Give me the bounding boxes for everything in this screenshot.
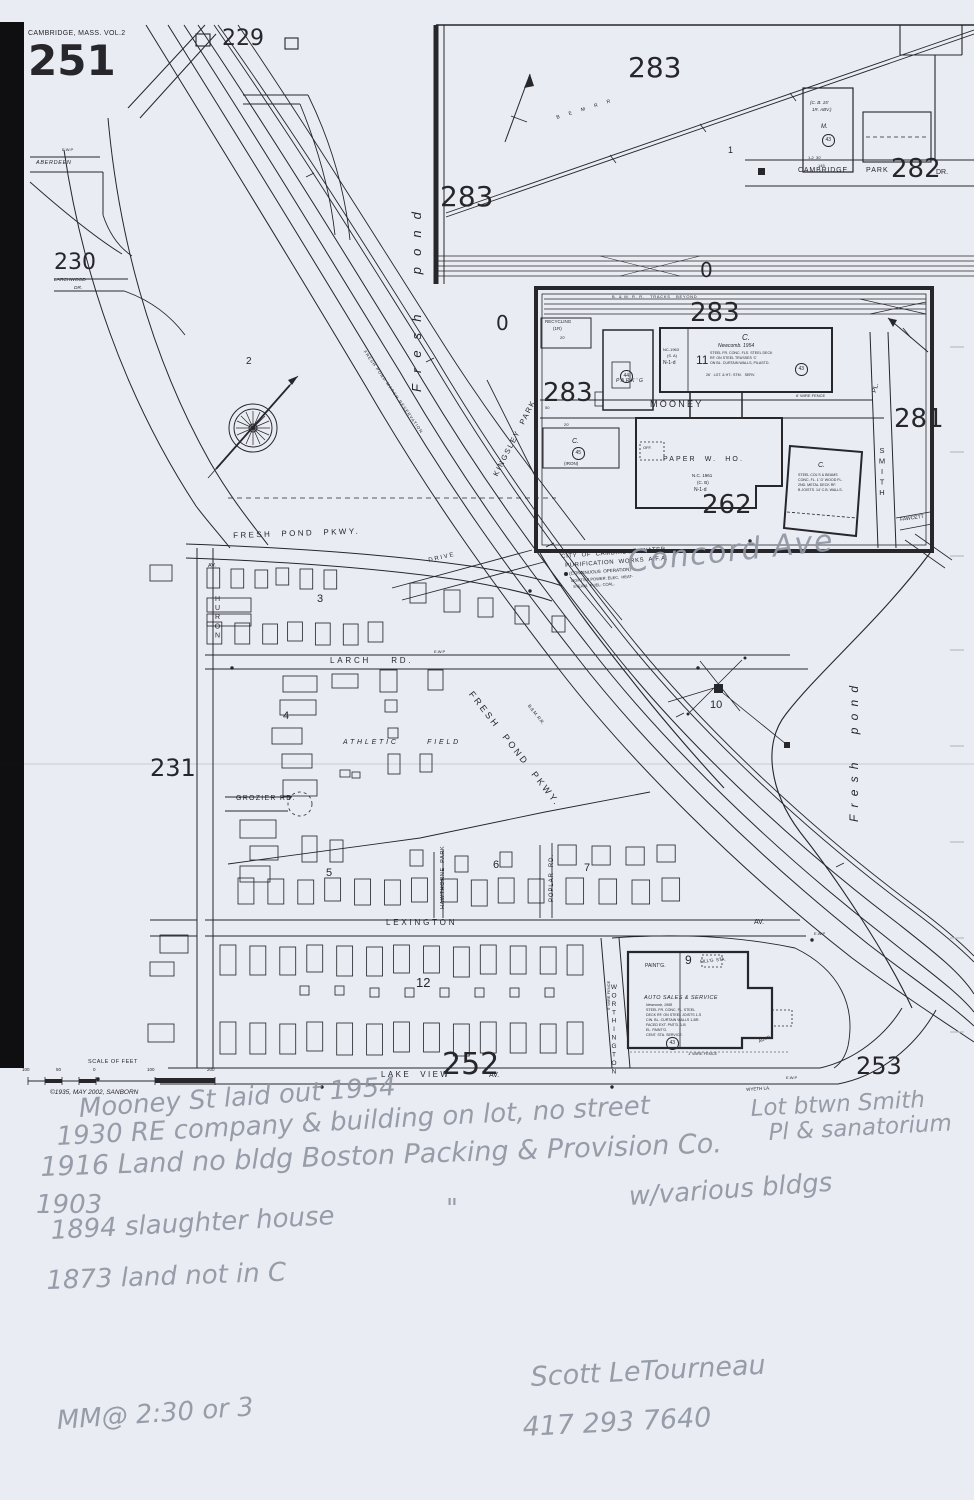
fence-1ft: 1' WIRE FENCE (688, 1052, 717, 1056)
street-fresh-pond-pkwy: FRESH POND PKWY. (233, 528, 360, 540)
plate-283-left: 283 (440, 183, 493, 211)
iron-bldg-note: (IRON) (564, 462, 578, 467)
ewp-label-4: E.W.P (786, 1076, 797, 1080)
recycling-line2: (1R) (553, 327, 562, 332)
newcomb-annex1: NC-1963 (663, 348, 679, 352)
auto-sales-title: AUTO SALES & SERVICE (644, 996, 718, 1002)
newcomb-class: C. (742, 334, 750, 342)
paper-warehouse-const: (C. B) (697, 481, 709, 486)
street-drive: DRIVE (428, 552, 456, 564)
steel-bldg-spec4: B JOISTS. 14' C.B. WALLS. (798, 489, 843, 493)
block-7: 7 (584, 863, 590, 874)
circled-number-43-cambridge-park: 43 (822, 134, 835, 147)
paper-warehouse-office: OFF. (643, 446, 652, 450)
plate-229: 229 (222, 28, 264, 50)
circled-number-43-newcomb: 43 (795, 363, 808, 376)
zero-mark-b: 0 (700, 260, 713, 280)
pencil-note-1873: 1873 land not in C (46, 1260, 287, 1294)
block-4: 4 (283, 711, 289, 722)
street-cambridge: CAMBRIDGE (798, 167, 848, 174)
railroad-tracks-beyond: B. & M. R. R. TRACKS BEYOND (612, 295, 697, 299)
plate-283-top: 283 (628, 54, 681, 82)
pencil-signature: Scott LeTourneau (530, 1352, 766, 1391)
cb-bldg-m: M. (821, 124, 828, 130)
cb-bldg-dim2: 145 (818, 164, 825, 168)
scale-100-right: 100 (147, 1068, 155, 1073)
block-2: 2 (246, 357, 252, 367)
street-mooney: MOONEY (650, 400, 704, 409)
paper-warehouse: PAPER W. HO. (663, 456, 744, 463)
circled-number-43-auto: 43 (666, 1037, 679, 1050)
newcomb-spec3: ON BL. CURTAIN WALLS, PILASTD. (710, 362, 769, 366)
street-fawcett: FAWCETT (900, 515, 924, 523)
waterworks-line5: STEAM, FUEL: COAL. (573, 582, 615, 589)
scale-200: 200 (207, 1068, 215, 1073)
sheet-number: 251 (28, 40, 116, 82)
newcomb-annex3: N-1-d (663, 361, 676, 366)
ewp-label-2: E.W.P (434, 650, 445, 654)
painting-note: PAINT'G. (645, 964, 666, 969)
plate-253: 253 (856, 1054, 902, 1078)
street-grozier-rd: GROZIER RD. (236, 795, 296, 802)
street-lake-view-av-suffix: AV. (489, 1072, 499, 1079)
pencil-concord-ave: Concord Ave (626, 526, 835, 578)
scale-100-left: 100 (22, 1068, 30, 1073)
plate-230: 230 (54, 252, 96, 274)
street-larchwood: LARCHWOOD (54, 279, 86, 284)
iron-bldg-class: C. (572, 438, 579, 445)
railroad-bm-inset: B E M R R (556, 99, 613, 121)
lot-number-1: 1 (728, 146, 733, 155)
mooney-width: 50 (545, 406, 549, 410)
street-wyeth-la: WYETH LA. (746, 1086, 771, 1092)
street-huron-av-suffix: AV. (208, 564, 216, 570)
pencil-meeting-note: MM@ 2:30 or 3 (56, 1394, 255, 1434)
recycling-line1: RECYCLING (545, 320, 571, 325)
recycling-line3: 20' (560, 336, 565, 340)
ewp-label-1: E.W.P (62, 148, 73, 152)
circled-number-45: 45 (572, 447, 585, 460)
pencil-ditto-mark: " (446, 1196, 458, 1222)
street-larchwood-dr: DR. (74, 287, 82, 292)
steel-bldg-class: C. (818, 462, 825, 469)
street-kingsley-park: KINGSLEY PARK (492, 399, 537, 478)
circled-number-44: 44 (620, 370, 633, 383)
street-poplar-rd: POPLAR RD. (549, 854, 555, 902)
street-lexington: LEXINGTON (386, 919, 457, 927)
paper-warehouse-code: N-1-d (694, 488, 707, 493)
block-3: 3 (317, 594, 323, 605)
street-cambridge-dr-suffix: DR. (936, 169, 948, 176)
scale-0: 0 (93, 1068, 96, 1073)
auto-road-note: AUTO (758, 1035, 771, 1044)
fence-5ft: 5' WIRE FENCE (607, 981, 611, 1010)
block-5: 5 (326, 868, 332, 879)
street-huron: HURON (214, 596, 221, 642)
newcomb-annex2: (S. A) (667, 354, 677, 358)
street-fresh-pond-pkwy-diagonal: FRESH POND PKWY. (467, 690, 562, 808)
ewp-label-3: E.W.P (814, 932, 825, 936)
block-10: 10 (710, 700, 722, 711)
scanned-map-sheet: CAMBRIDGE, MASS. VOL.2251229230231252253… (0, 0, 974, 1500)
newcomb-name: Newcomb. 1954 (718, 344, 754, 349)
iron-bldg-dim: 20' (564, 423, 569, 427)
zero-mark-a: 0 (496, 313, 509, 333)
plate-282: 282 (891, 156, 941, 182)
block-9: 9 (685, 954, 692, 966)
block-12: 12 (416, 976, 430, 989)
cb-bldg-line1: (C. B. 15' (810, 101, 829, 106)
fence-6ft: 6' WIRE FENCE (796, 394, 825, 398)
street-lexington-av-suffix: AV. (754, 919, 764, 926)
filling-station-note: FILL'G STA. (700, 957, 726, 964)
street-smith: SMITH (878, 446, 886, 499)
street-larch-rd: LARCH RD. (330, 657, 413, 665)
plate-283-inset-left: 283 (543, 380, 593, 406)
newcomb-spec4: 26' LGT. & HT.: STM. SERV. (706, 374, 755, 378)
plate-283-inset-top: 283 (690, 300, 740, 326)
street-park: PARK (866, 167, 889, 174)
pencil-phone: 417 293 7640 (522, 1404, 712, 1441)
street-hawthorne-park: HAWTHORNE PARK (441, 846, 447, 909)
auto-sales-spec6: CENT. STA. SERVICE. (646, 1034, 683, 1038)
railroad-bm-main: B.& M. R.R. (526, 704, 544, 725)
street-aberdeen: ABERDEEN (36, 161, 72, 167)
pencil-note-various: w/various bldgs (628, 1170, 833, 1210)
map-labels-layer: CAMBRIDGE, MASS. VOL.2251229230231252253… (0, 0, 974, 1500)
athletic-field: ATHLETIC FIELD (343, 739, 461, 746)
plate-262: 262 (702, 492, 752, 518)
scale-50: 50 (56, 1068, 61, 1073)
water-fresh-pond-right: Fresh pond (848, 679, 860, 822)
block-6: 6 (493, 860, 499, 871)
plate-281: 281 (894, 406, 944, 432)
street-smith-pl-suffix: PL. (872, 383, 881, 394)
block-11: 11 (696, 354, 708, 366)
cb-bldg-dim1: 1-2 30' (808, 156, 821, 160)
cb-bldg-line2: 1R. ABV.) (812, 108, 832, 113)
plate-231: 231 (150, 756, 196, 780)
scale-title: SCALE OF FEET (88, 1060, 138, 1066)
water-fresh-pond-left: Fresh pond (410, 201, 423, 392)
paper-warehouse-year: N.C. 1961 (692, 474, 712, 479)
